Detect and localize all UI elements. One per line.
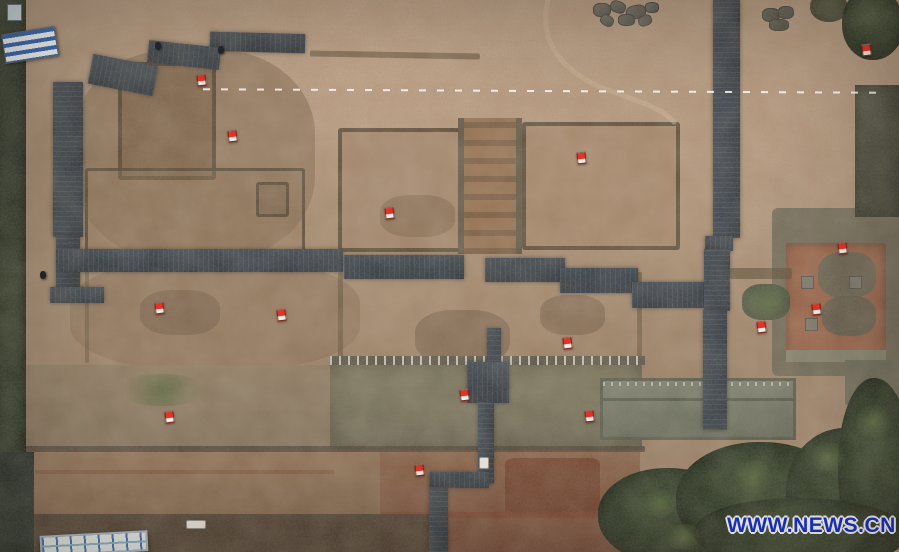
survey-flag [576, 151, 586, 164]
survey-flag [459, 388, 469, 401]
person-on-boardwalk [218, 46, 224, 54]
survey-flag [811, 302, 821, 315]
aerial-photo-excavation-site: WWW.NEWS.CN [0, 0, 899, 552]
person-on-boardwalk [155, 42, 161, 50]
marker-layer [0, 0, 899, 552]
survey-flag [562, 336, 572, 349]
survey-flag [276, 308, 286, 321]
survey-flag [164, 410, 174, 423]
survey-flag [837, 241, 847, 254]
survey-flag [384, 206, 394, 219]
survey-flag [227, 129, 237, 142]
news-watermark: WWW.NEWS.CN [727, 514, 896, 538]
survey-flag [584, 409, 594, 422]
white-field-marker [479, 457, 489, 469]
survey-flag [196, 73, 206, 86]
survey-flag [756, 320, 766, 333]
survey-flag [861, 43, 871, 56]
survey-flag [154, 301, 164, 314]
person-on-boardwalk [40, 271, 46, 279]
white-field-marker [186, 520, 206, 529]
survey-flag [414, 463, 424, 476]
